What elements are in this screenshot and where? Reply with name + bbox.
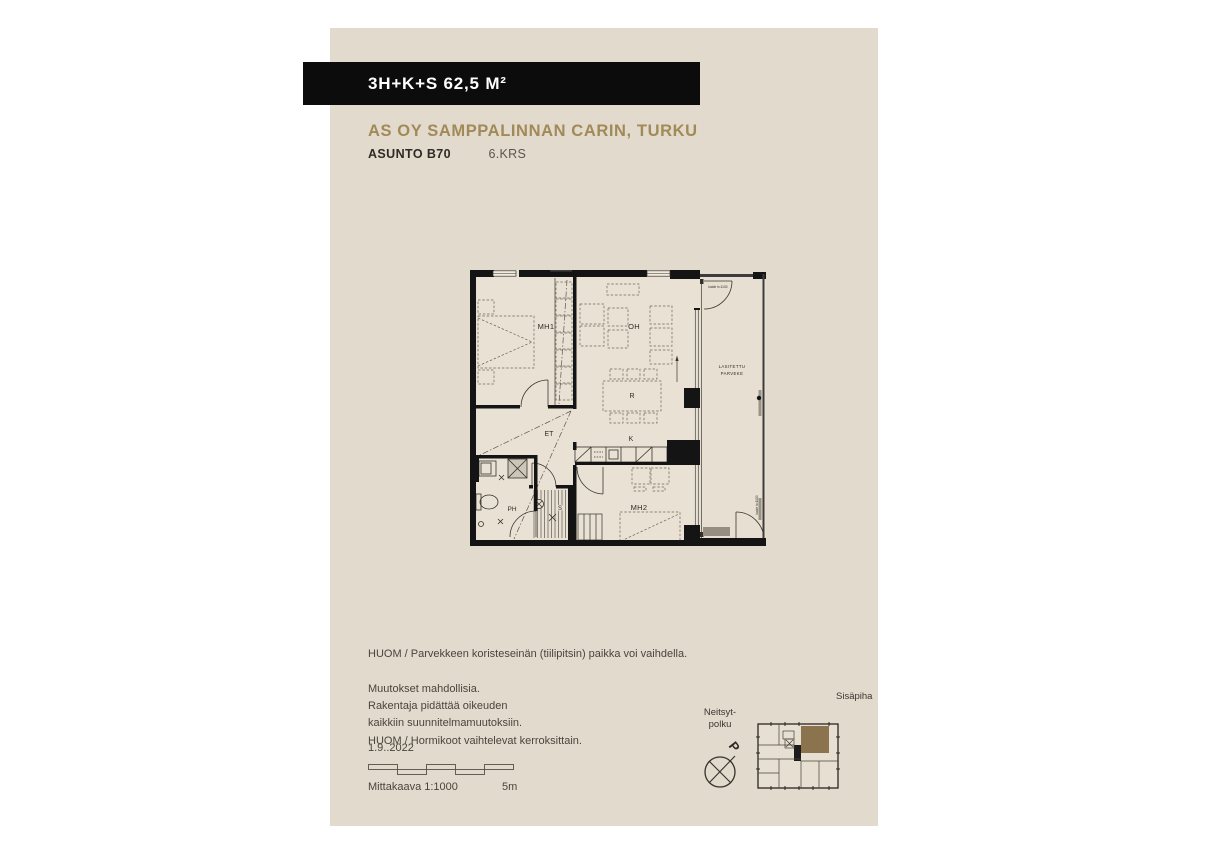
floor-label: 6.KRS [488,147,526,161]
apartment-number: ASUNTO B70 [368,147,451,161]
unit-highlight [801,726,829,753]
scale-length: 5m [502,781,517,793]
disclaimer-line: Muutokset mahdollisia. [368,681,582,698]
railing-note-side: kaide h=1100 [755,495,759,514]
disclaimer-line: Rakentaja pidättää oikeuden [368,698,582,715]
room-label-et: ET [545,431,555,438]
compass-icon: P [698,735,746,796]
balcony-bench [703,527,730,536]
balcony-bottom-wall [700,538,766,546]
unit-type-label: 3H+K+S 62,5 M² [303,74,507,94]
room-label-k: K [629,436,634,443]
street-label: Neitsyt- polku [698,707,742,730]
balcony-label-line1: LASITETTU [719,364,746,369]
scale-label: Mittakaava 1:1000 [368,781,458,793]
railing-note-top: kaide h=1100 [709,285,728,289]
disclaimer: Muutokset mahdollisia. Rakentaja pidättä… [368,681,582,750]
apartment-row: ASUNTO B70 6.KRS [368,147,526,161]
project-title: AS OY SAMPPALINNAN CARIN, TURKU [368,122,698,141]
page: 3H+K+S 62,5 M² AS OY SAMPPALINNAN CARIN,… [0,0,1208,854]
scale-bar [368,763,518,781]
room-label-mh2: MH2 [631,503,648,512]
floor-plan-drawing: MH1 OH R K ET PH S MH2 LASITETTU PARVEKE… [470,270,766,546]
unit-type-banner: 3H+K+S 62,5 M² [303,62,700,105]
floor-plan: MH1 OH R K ET PH S MH2 LASITETTU PARVEKE… [470,270,766,551]
room-label-oh: OH [628,322,640,331]
room-label-mh1: MH1 [538,322,555,331]
site-plan [753,719,843,798]
room-label-ph: PH [507,506,516,513]
balcony-glazing [763,274,765,546]
compass-north-letter: P [726,739,743,755]
balcony-label-line2: PARVEKE [721,371,744,376]
room-label-r: R [629,393,634,400]
room-label-s: S [558,506,562,512]
plan-date: 1.9..2022 [368,742,414,754]
courtyard-label: Sisäpiha [836,691,872,702]
balcony-note: HUOM / Parvekkeen koristeseinän (tiilipi… [368,648,687,660]
disclaimer-line: kaikkiin suunnitelmamuutoksiin. [368,715,582,732]
